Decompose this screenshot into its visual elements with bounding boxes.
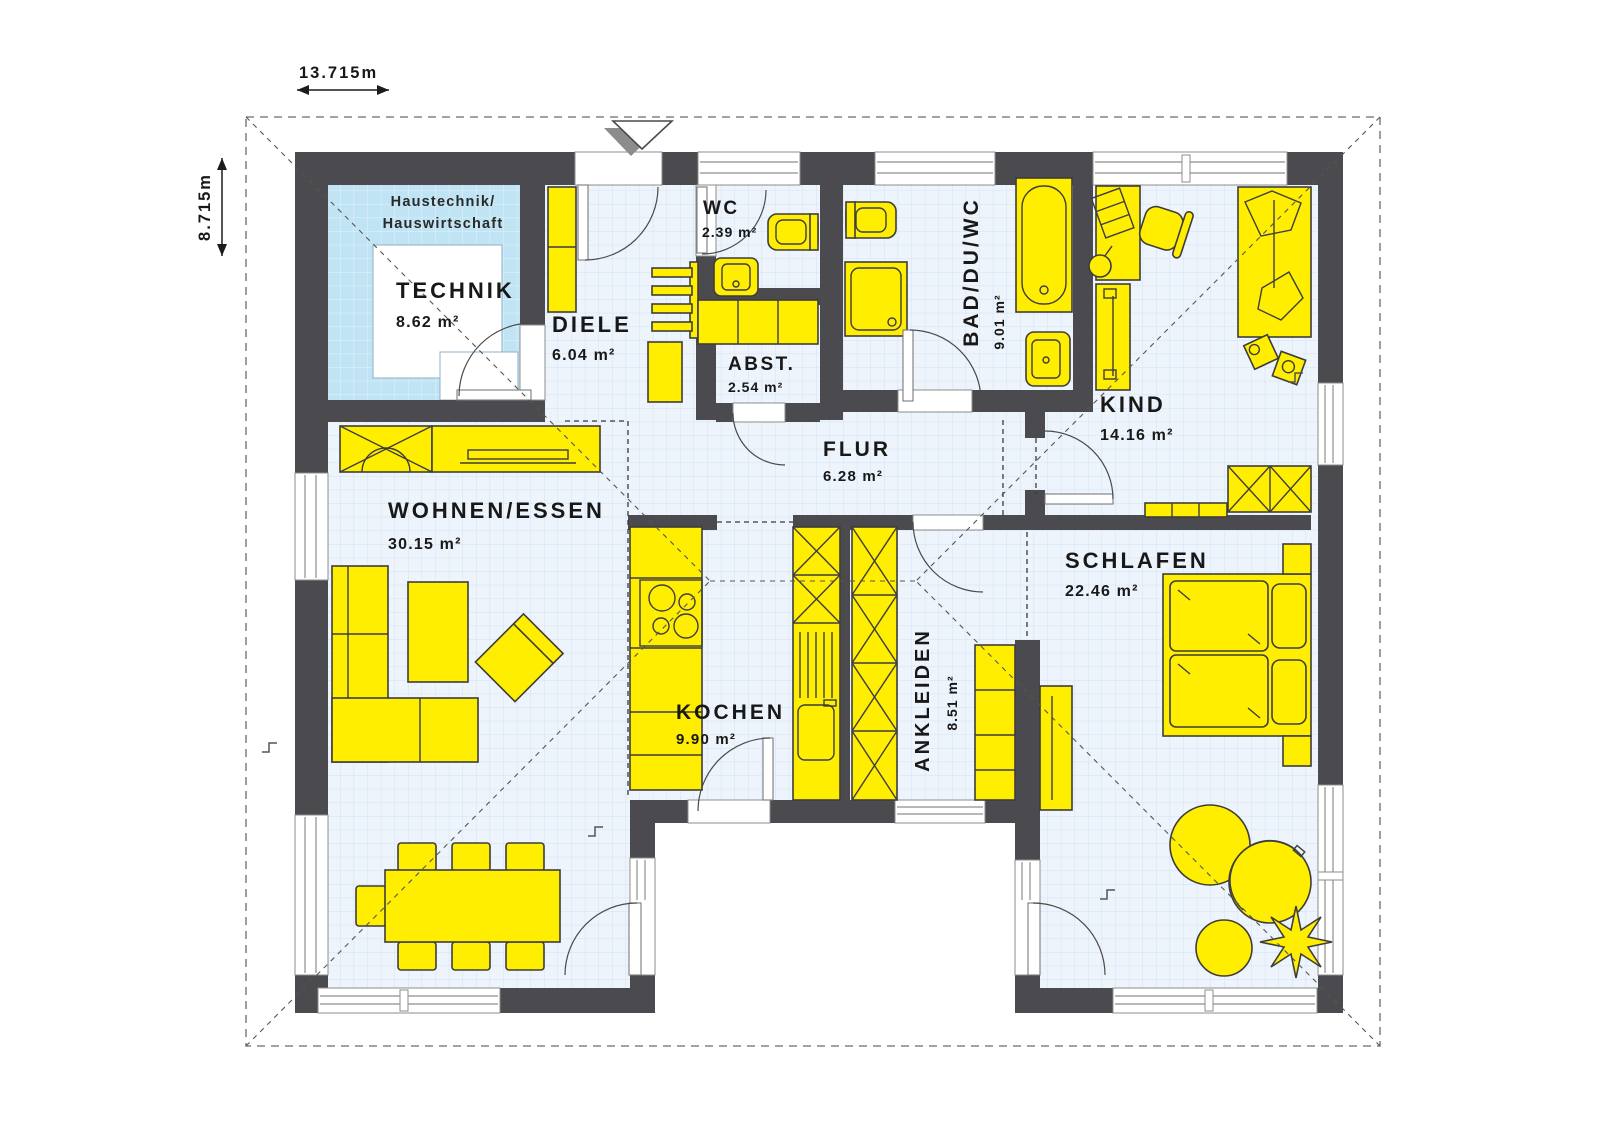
room-label-diele: DIELE (552, 312, 632, 337)
room-label-wohnen: WOHNEN/ESSEN (388, 498, 605, 523)
technik-note-line1: Haustechnik/ (391, 194, 496, 210)
window-kind-right (1318, 383, 1343, 465)
coffee-table-icon (408, 582, 468, 682)
wc-sink-icon (714, 258, 758, 296)
window-bad (875, 152, 995, 185)
floor-plan-svg: 13.715m 8.715m Haustechnik/ Hauswirtscha… (0, 0, 1600, 1132)
ankleiden-dresser-icon (975, 645, 1015, 800)
room-label-flur: FLUR (823, 438, 891, 461)
room-area-abst: 2.54 m² (728, 379, 783, 395)
kind-toy-shelf-icon (1145, 503, 1227, 517)
room-area-wc: 2.39 m² (702, 224, 757, 240)
room-area-kochen: 9.90 m² (676, 731, 736, 748)
bathtub-icon (1016, 178, 1072, 312)
shower-icon (845, 262, 907, 336)
bad-sink-icon (1026, 332, 1070, 386)
window-wohnen-left-lower (295, 815, 328, 975)
ankleiden-door-opening (913, 515, 983, 530)
technik-door-opening (520, 325, 545, 400)
dimension-height: 8.715m (196, 158, 227, 256)
dimension-width: 13.715m (297, 64, 389, 95)
kind-wardrobe-icon (1228, 466, 1311, 512)
hall-cabinet-icon (548, 187, 576, 312)
room-area-kind: 14.16 m² (1100, 427, 1174, 444)
room-label-kind: KIND (1100, 392, 1166, 417)
floor-plan-canvas: 13.715m 8.715m Haustechnik/ Hauswirtscha… (0, 0, 1600, 1132)
kochen-door-opening (688, 800, 770, 823)
kitchen-tall-units-icon (793, 527, 840, 800)
double-bed-icon (1163, 544, 1311, 766)
sideboard-x-cabinet-icon (340, 426, 432, 472)
abst-door-opening (733, 403, 785, 422)
room-label-wc: WC (703, 198, 740, 219)
kind-desk-icon (1089, 186, 1140, 280)
room-label-bad: BAD/DU/WC (960, 197, 983, 346)
room-area-schlafen: 22.46 m² (1065, 583, 1139, 600)
storage-shelf-icon (698, 300, 818, 344)
room-area-technik: 8.62 m² (396, 314, 460, 331)
room-area-diele: 6.04 m² (552, 347, 616, 364)
room-label-schlafen: SCHLAFEN (1065, 548, 1209, 573)
window-kind-top (1093, 152, 1287, 185)
entrance-door-opening (575, 152, 662, 185)
room-area-bad: 9.01 m² (991, 294, 1007, 349)
room-area-ankleiden: 8.51 m² (944, 675, 960, 730)
round-chair-back-icon (1229, 841, 1311, 923)
window-terrace-left (318, 988, 500, 1013)
dimension-width-label: 13.715m (299, 64, 378, 82)
room-area-wohnen: 30.15 m² (388, 536, 462, 553)
tv-board-icon (432, 426, 600, 472)
room-label-ankleiden: ANKLEIDEN (912, 628, 934, 772)
kind-shelf-icon (1096, 284, 1130, 390)
window-ankleiden-south (895, 800, 985, 823)
window-terrace-right (1113, 988, 1317, 1013)
window-wohnen-left-upper (295, 473, 328, 580)
entrance-marker-icon (604, 121, 672, 156)
hall-small-cabinet-icon (648, 342, 682, 402)
wc-toilet-icon (768, 214, 818, 250)
room-area-flur: 6.28 m² (823, 468, 883, 485)
ankleiden-wardrobe-column-icon (852, 527, 897, 800)
bad-toilet-icon (846, 202, 896, 238)
room-label-technik: TECHNIK (396, 278, 515, 303)
kind-bed-icon (1238, 187, 1311, 337)
schlafen-sideboard-icon (1040, 686, 1072, 810)
room-label-abst: ABST. (728, 354, 795, 375)
kitchen-counter-icon (630, 527, 702, 790)
dimension-height-label: 8.715m (196, 173, 214, 241)
window-wc (698, 152, 800, 185)
technik-note-line2: Hauswirtschaft (383, 216, 504, 232)
window-schlafen-right (1318, 785, 1343, 975)
round-side-table-icon (1196, 920, 1252, 976)
room-label-kochen: KOCHEN (676, 701, 785, 724)
